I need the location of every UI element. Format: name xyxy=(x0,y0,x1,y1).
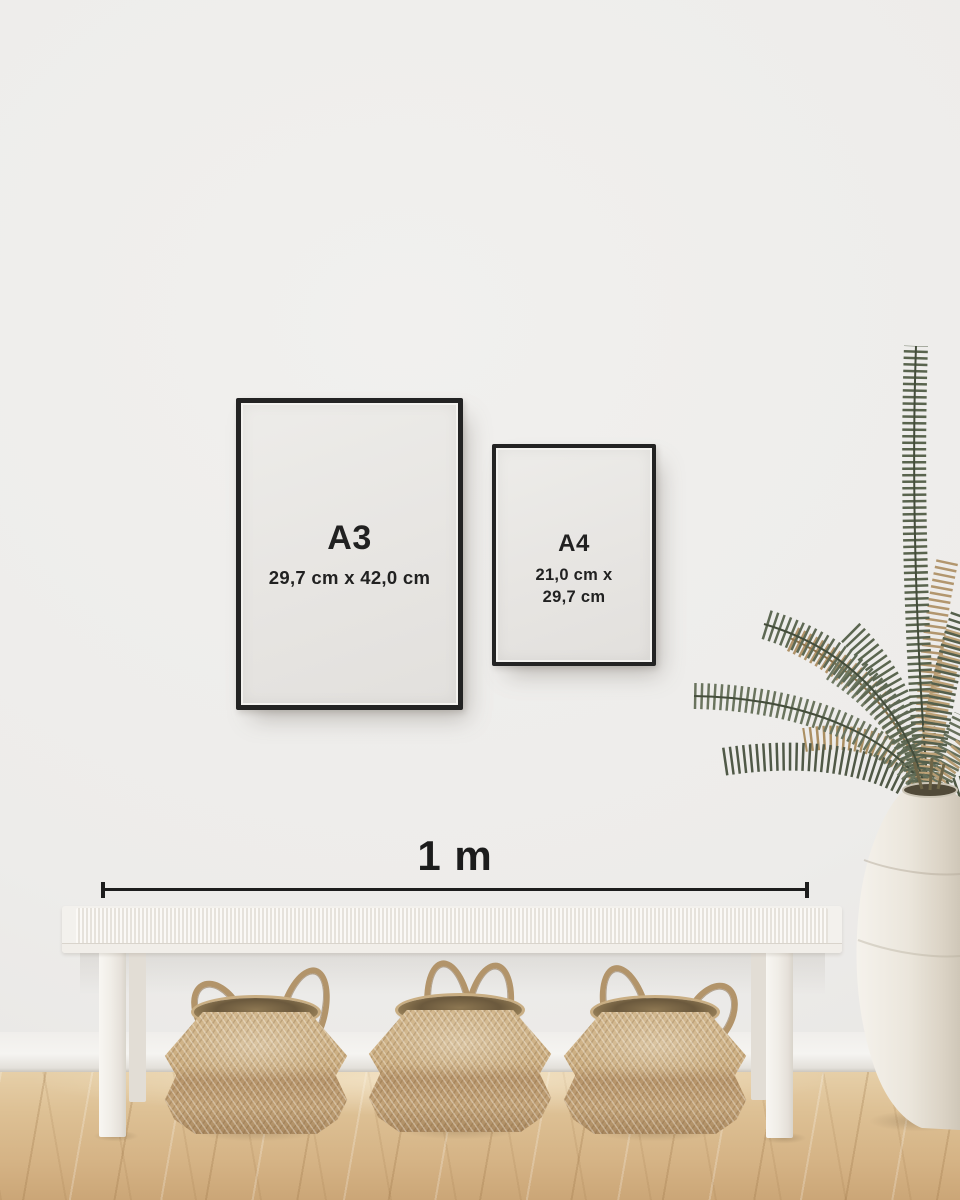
basket-body xyxy=(161,1012,351,1134)
basket-body xyxy=(365,1010,555,1132)
frame-a3-label: A3 xyxy=(327,519,371,558)
palm-plant-and-vase xyxy=(596,300,960,1140)
poster-paper-a3: A3 29,7 cm x 42,0 cm xyxy=(241,403,458,705)
storage-basket-left xyxy=(161,968,351,1140)
frame-a3-dimensions: 29,7 cm x 42,0 cm xyxy=(269,567,430,589)
poster-frame-a3: A3 29,7 cm x 42,0 cm xyxy=(236,398,463,710)
storage-basket-middle xyxy=(365,966,555,1138)
frame-a4-label: A4 xyxy=(558,530,590,558)
palm-fronds xyxy=(694,346,960,800)
bench-leg-rear-left xyxy=(129,950,146,1102)
floor-vase xyxy=(857,787,960,1130)
bench-leg-front-left xyxy=(99,950,126,1137)
scale-tick-left xyxy=(101,882,105,898)
